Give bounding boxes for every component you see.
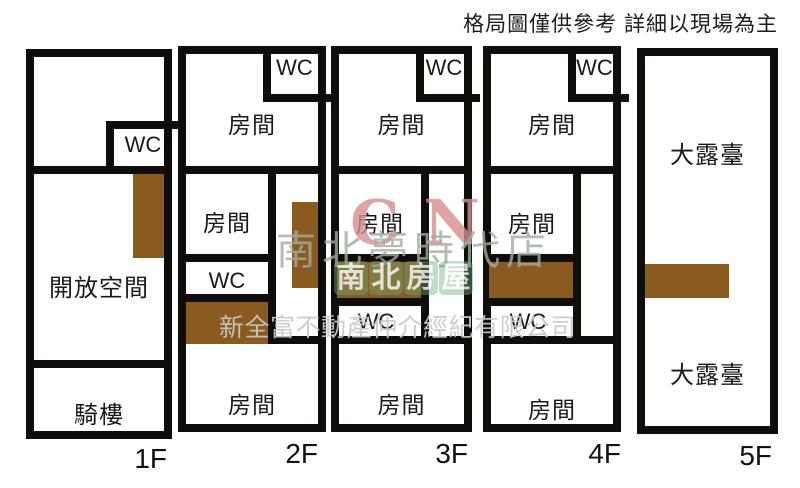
floor-3f-floor-wall [331,336,472,344]
floor-5f-stairs [645,264,729,298]
floor-3f-room-mid-bottom-wall [331,254,429,262]
floor-3f-tag: 3F [398,438,468,470]
floor-2f-wc-top-label: WC [271,55,318,81]
floor-2f-tag: 2F [248,438,318,470]
floor-2f-divider-wall [178,166,326,174]
floor-4f-room-mid-bottom-wall [483,254,581,262]
floor-3f-divider-wall [331,166,472,174]
floor-3f-room-bottom-label: 房間 [331,386,472,420]
floor-5f-terrace-top-label: 大露臺 [637,135,778,170]
floor-5f-terrace-bottom-label: 大露臺 [637,355,778,390]
floor-4f: WC 房間 房間 WC 房間 [483,46,621,432]
floor-5f: 大露臺 大露臺 [637,48,778,434]
floor-3f-wc-top-label: WC [424,55,464,81]
floor-4f-divider-wall [483,166,621,174]
floor-4f-room-bottom-label: 房間 [483,391,621,425]
floor-3f-stairs [337,262,421,298]
floor-2f-room-mid-bottom-wall [178,254,276,262]
floor-1f-divider-wall-upper [26,166,172,174]
floor-5f-tag: 5F [702,440,772,472]
floor-4f-wc-top-label: WC [576,55,613,81]
floor-3f-wc-mid-label: WC [331,309,421,335]
floor-4f-stairs [489,262,573,298]
floorplan-canvas: 格局圖僅供參考 詳細以現場為主 WC 開放空間 騎樓 1F WC 房間 房間 W… [0,0,800,488]
floor-1f: WC 開放空間 騎樓 [26,49,172,439]
floor-4f-tag: 4F [551,438,621,470]
floor-1f-tag: 1F [97,443,167,475]
floor-4f-wc-top-wall [483,298,581,306]
floor-2f-room-mid-label: 房間 [178,204,276,238]
floor-2f-room-top-label: 房間 [178,106,326,140]
floor-3f: WC 房間 房間 WC 房間 [331,46,472,432]
floor-2f-wc-mid-label: WC [178,268,276,294]
floor-2f-stairs-landing [186,302,268,344]
floor-2f-room-bottom-label: 房間 [178,386,326,420]
floor-4f-wc-mid-label: WC [483,309,573,335]
floor-4f-room-mid-label: 房間 [483,205,581,239]
floor-1f-arcade-label: 騎樓 [26,395,172,430]
floor-3f-room-top-label: 房間 [331,106,472,140]
floor-3f-outline [331,46,472,432]
floor-1f-open-space-label: 開放空間 [26,268,172,303]
floor-4f-outline [483,46,621,432]
floor-3f-wc-top-wall [331,298,429,306]
floor-4f-floor-wall [483,336,621,344]
floor-1f-stairs [133,174,164,258]
floor-3f-room-mid-label: 房間 [331,205,429,239]
floor-4f-room-top-label: 房間 [483,106,621,140]
floor-2f-stairs [292,202,318,288]
floor-2f-wc-bottom-wall [178,294,276,302]
floor-1f-wc-label: WC [114,132,172,158]
floor-2f: WC 房間 房間 WC 房間 [178,46,326,432]
floor-1f-divider-wall-lower [26,360,172,368]
disclaimer-text: 格局圖僅供參考 詳細以現場為主 [380,8,778,38]
